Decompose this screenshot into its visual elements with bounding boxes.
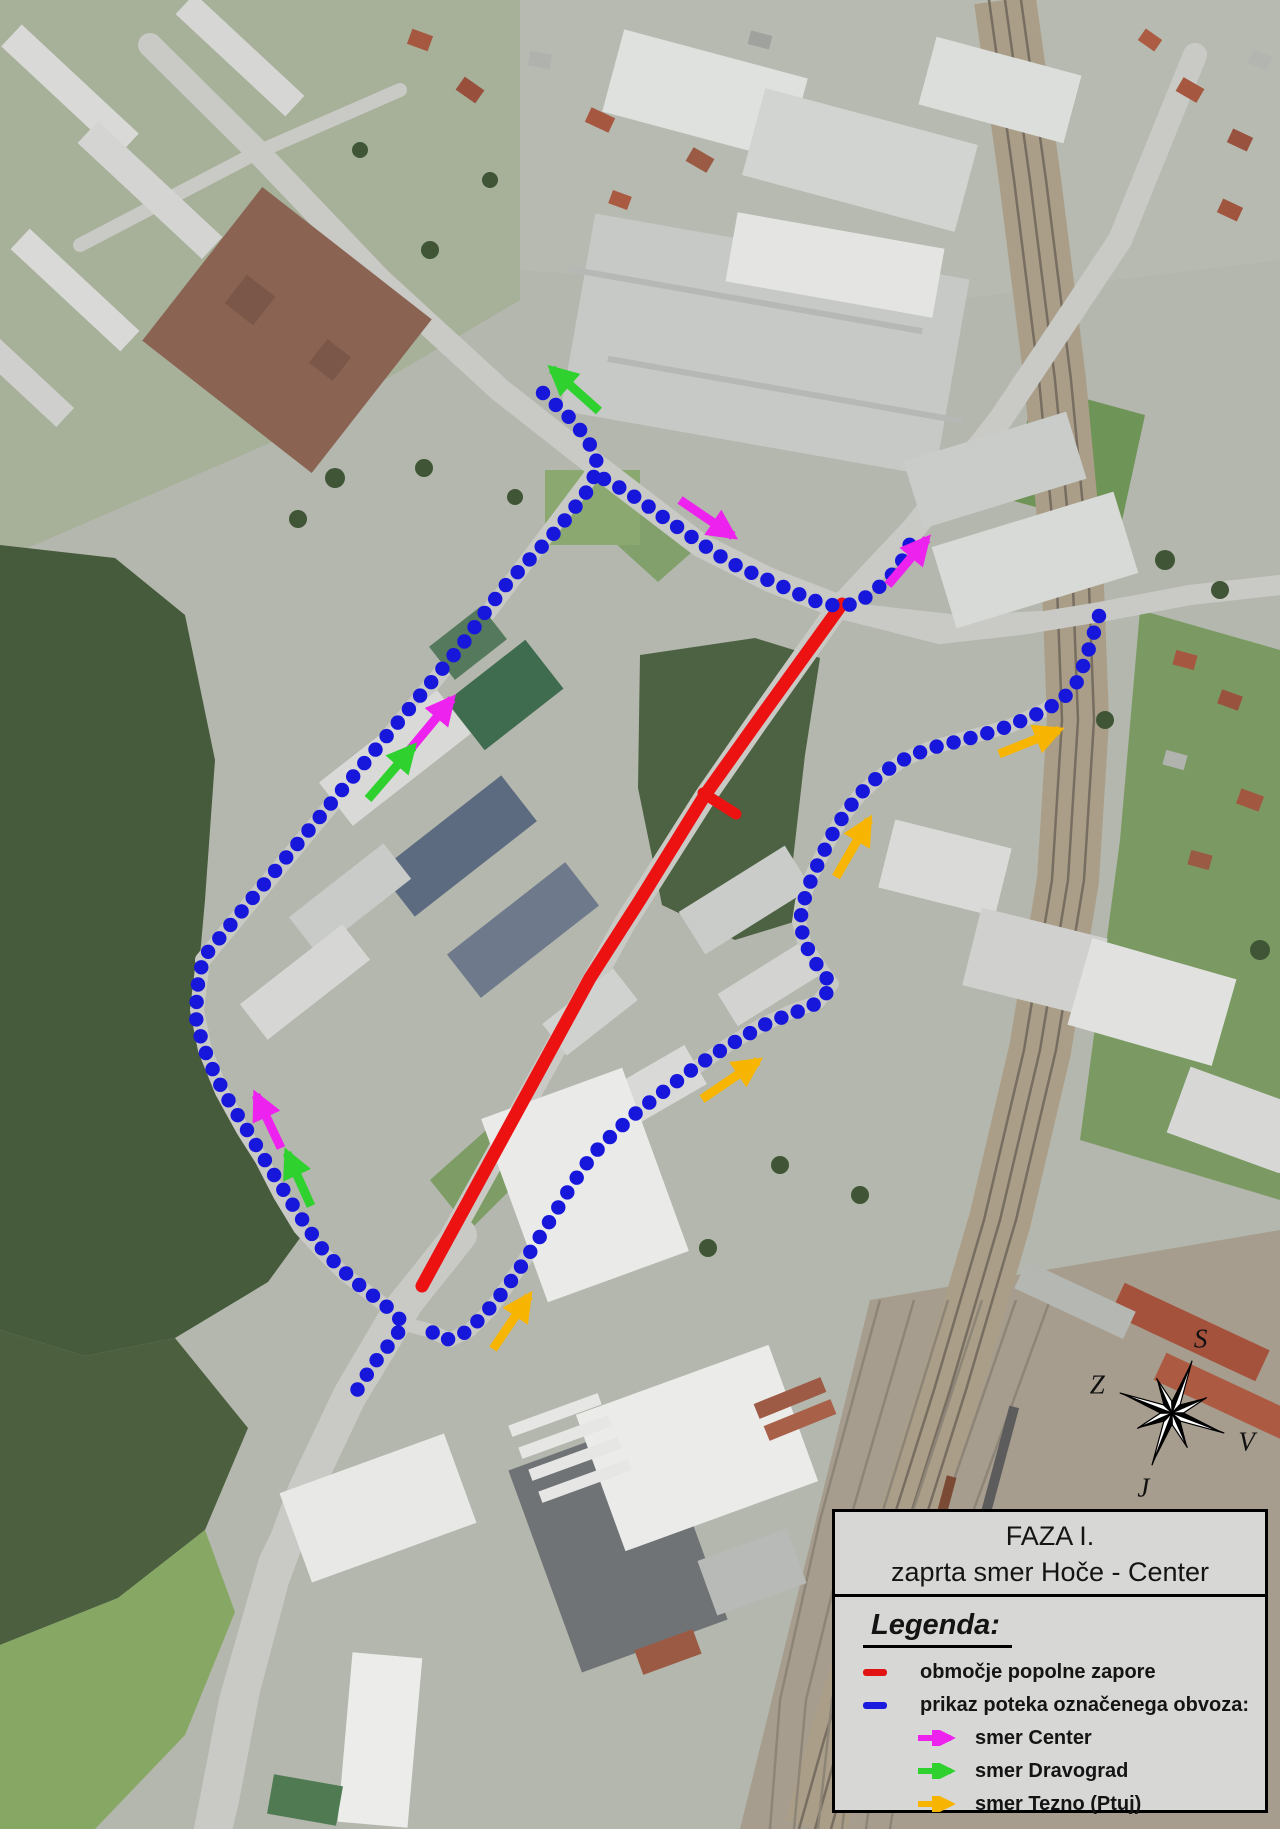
compass-label-north: S — [1194, 1323, 1208, 1353]
legend-item-smer-center: smer Center — [835, 1723, 1265, 1753]
legend-arrow — [915, 1730, 967, 1746]
legend-item-smer-tezno: smer Tezno (Ptuj) — [835, 1789, 1265, 1819]
legend-item-label: območje popolne zapore — [920, 1661, 1156, 1684]
compass-label-south: J — [1137, 1473, 1151, 1503]
legend-item-label: prikaz poteka označenega obvoza: — [920, 1694, 1249, 1717]
legend-arrow — [915, 1763, 967, 1779]
closure-dash-symbol — [863, 1669, 920, 1676]
tezno-arrow-icon — [915, 1796, 975, 1812]
phase-title: FAZA I. — [835, 1519, 1265, 1553]
closure-subtitle: zaprta smer Hoče - Center — [835, 1553, 1265, 1591]
legend-item-label: smer Dravograd — [975, 1760, 1128, 1783]
legend-item-closure: območje popolne zapore — [835, 1657, 1265, 1687]
legend-box: Legenda: območje popolne zapore prikaz p… — [832, 1594, 1268, 1813]
dravograd-arrow-icon — [915, 1763, 975, 1779]
detour-dash-symbol — [863, 1702, 920, 1709]
legend-item-detour: prikaz poteka označenega obvoza: — [835, 1690, 1265, 1720]
legend-dash — [863, 1702, 887, 1709]
legend-dash — [863, 1669, 887, 1676]
title-box: FAZA I. zaprta smer Hoče - Center — [832, 1509, 1268, 1597]
screenshot-root: SVJZ FAZA I. zaprta smer Hoče - Center L… — [0, 0, 1280, 1829]
compass-label-west: Z — [1090, 1369, 1106, 1399]
center-arrow-icon — [915, 1730, 975, 1746]
legend-arrow — [915, 1796, 967, 1812]
legend-item-smer-dravograd: smer Dravograd — [835, 1756, 1265, 1786]
legend-item-label: smer Tezno (Ptuj) — [975, 1793, 1141, 1816]
legend-heading: Legenda: — [863, 1609, 1012, 1648]
legend-item-label: smer Center — [975, 1727, 1092, 1750]
